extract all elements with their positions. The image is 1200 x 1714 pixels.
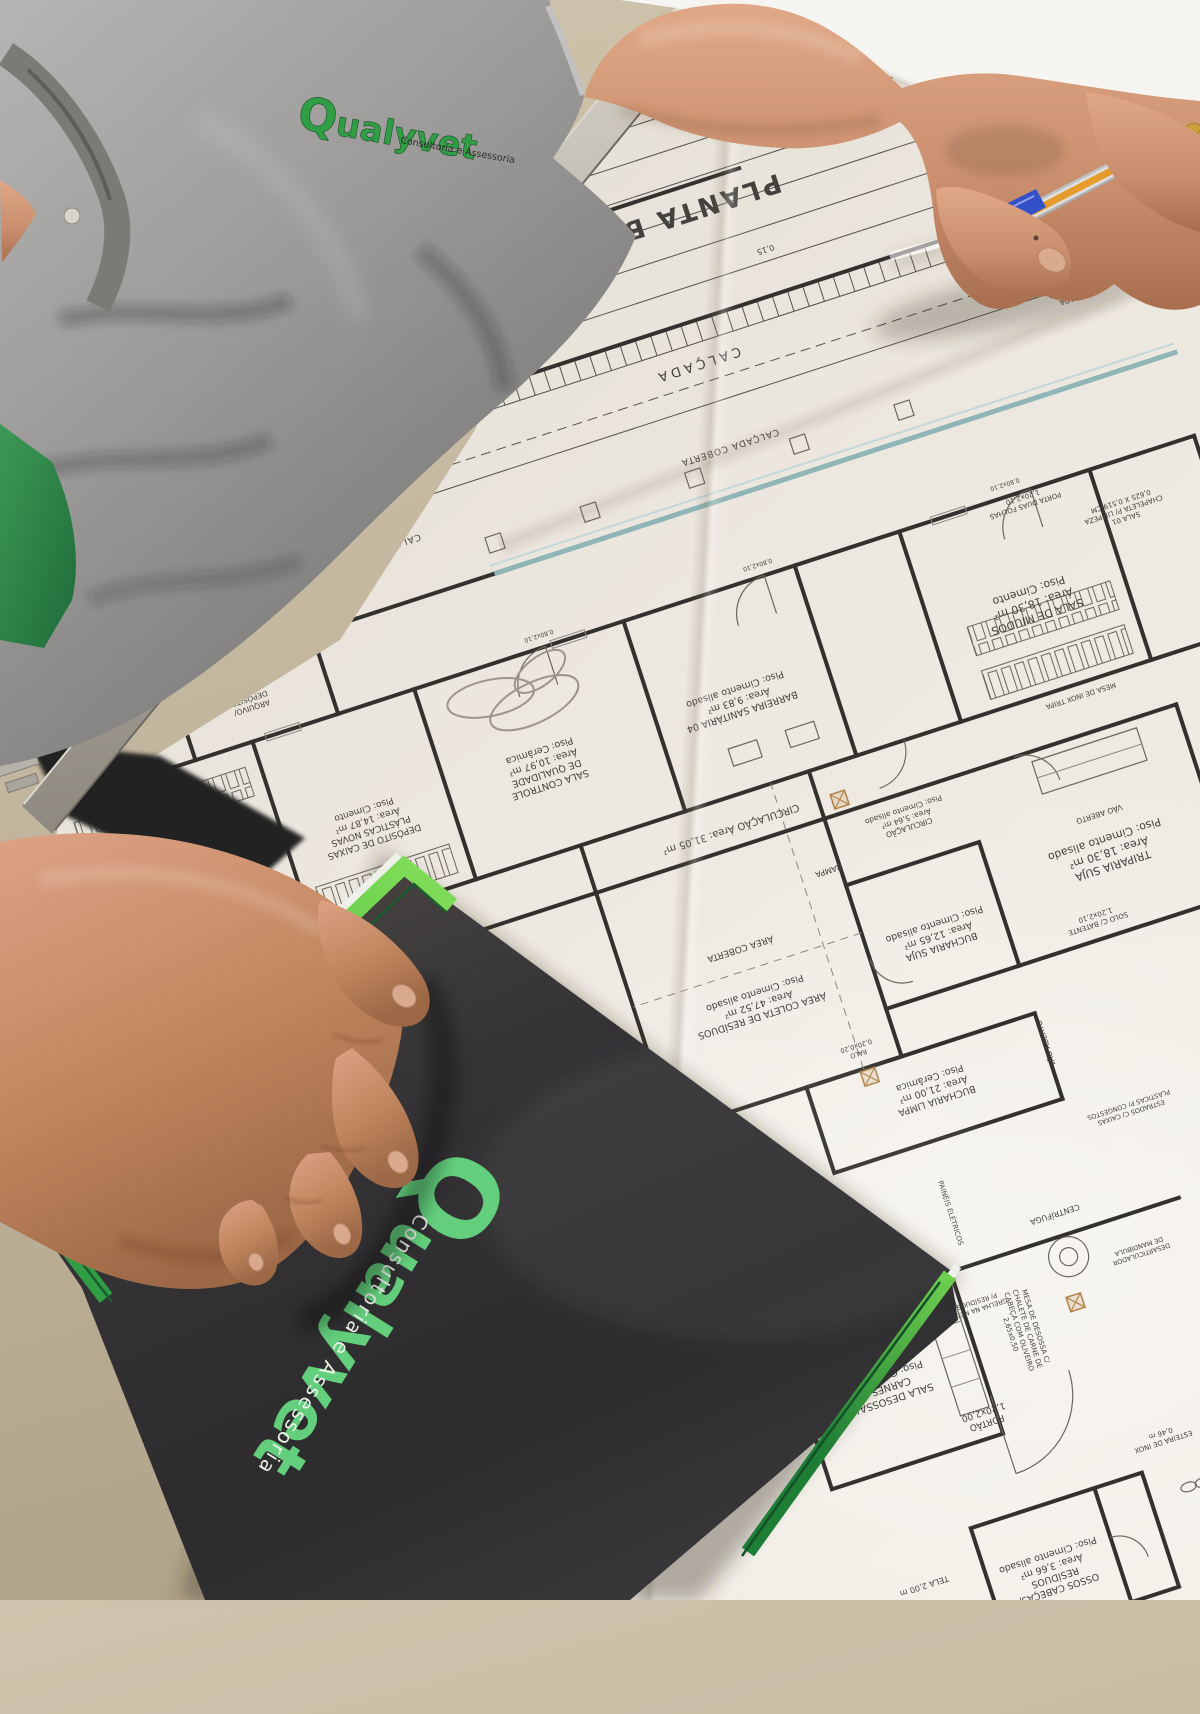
foreground-layer: Qualyvet Consultoria e Assessoria Qualyv… [0,0,1200,1600]
shirt-button [64,208,80,224]
person-torso: Qualyvet Consultoria e Assessoria [0,0,636,766]
